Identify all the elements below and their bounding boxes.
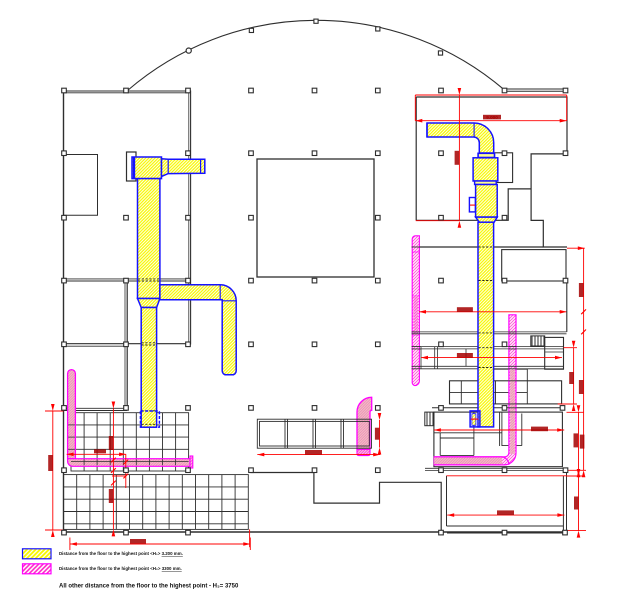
svg-text:All other distance from the fl: All other distance from the floor to the…: [59, 584, 239, 590]
svg-text:Distance from the floor to the: Distance from the floor to the highest p…: [59, 551, 183, 556]
svg-text:Distance from the floor to the: Distance from the floor to the highest p…: [59, 566, 182, 571]
